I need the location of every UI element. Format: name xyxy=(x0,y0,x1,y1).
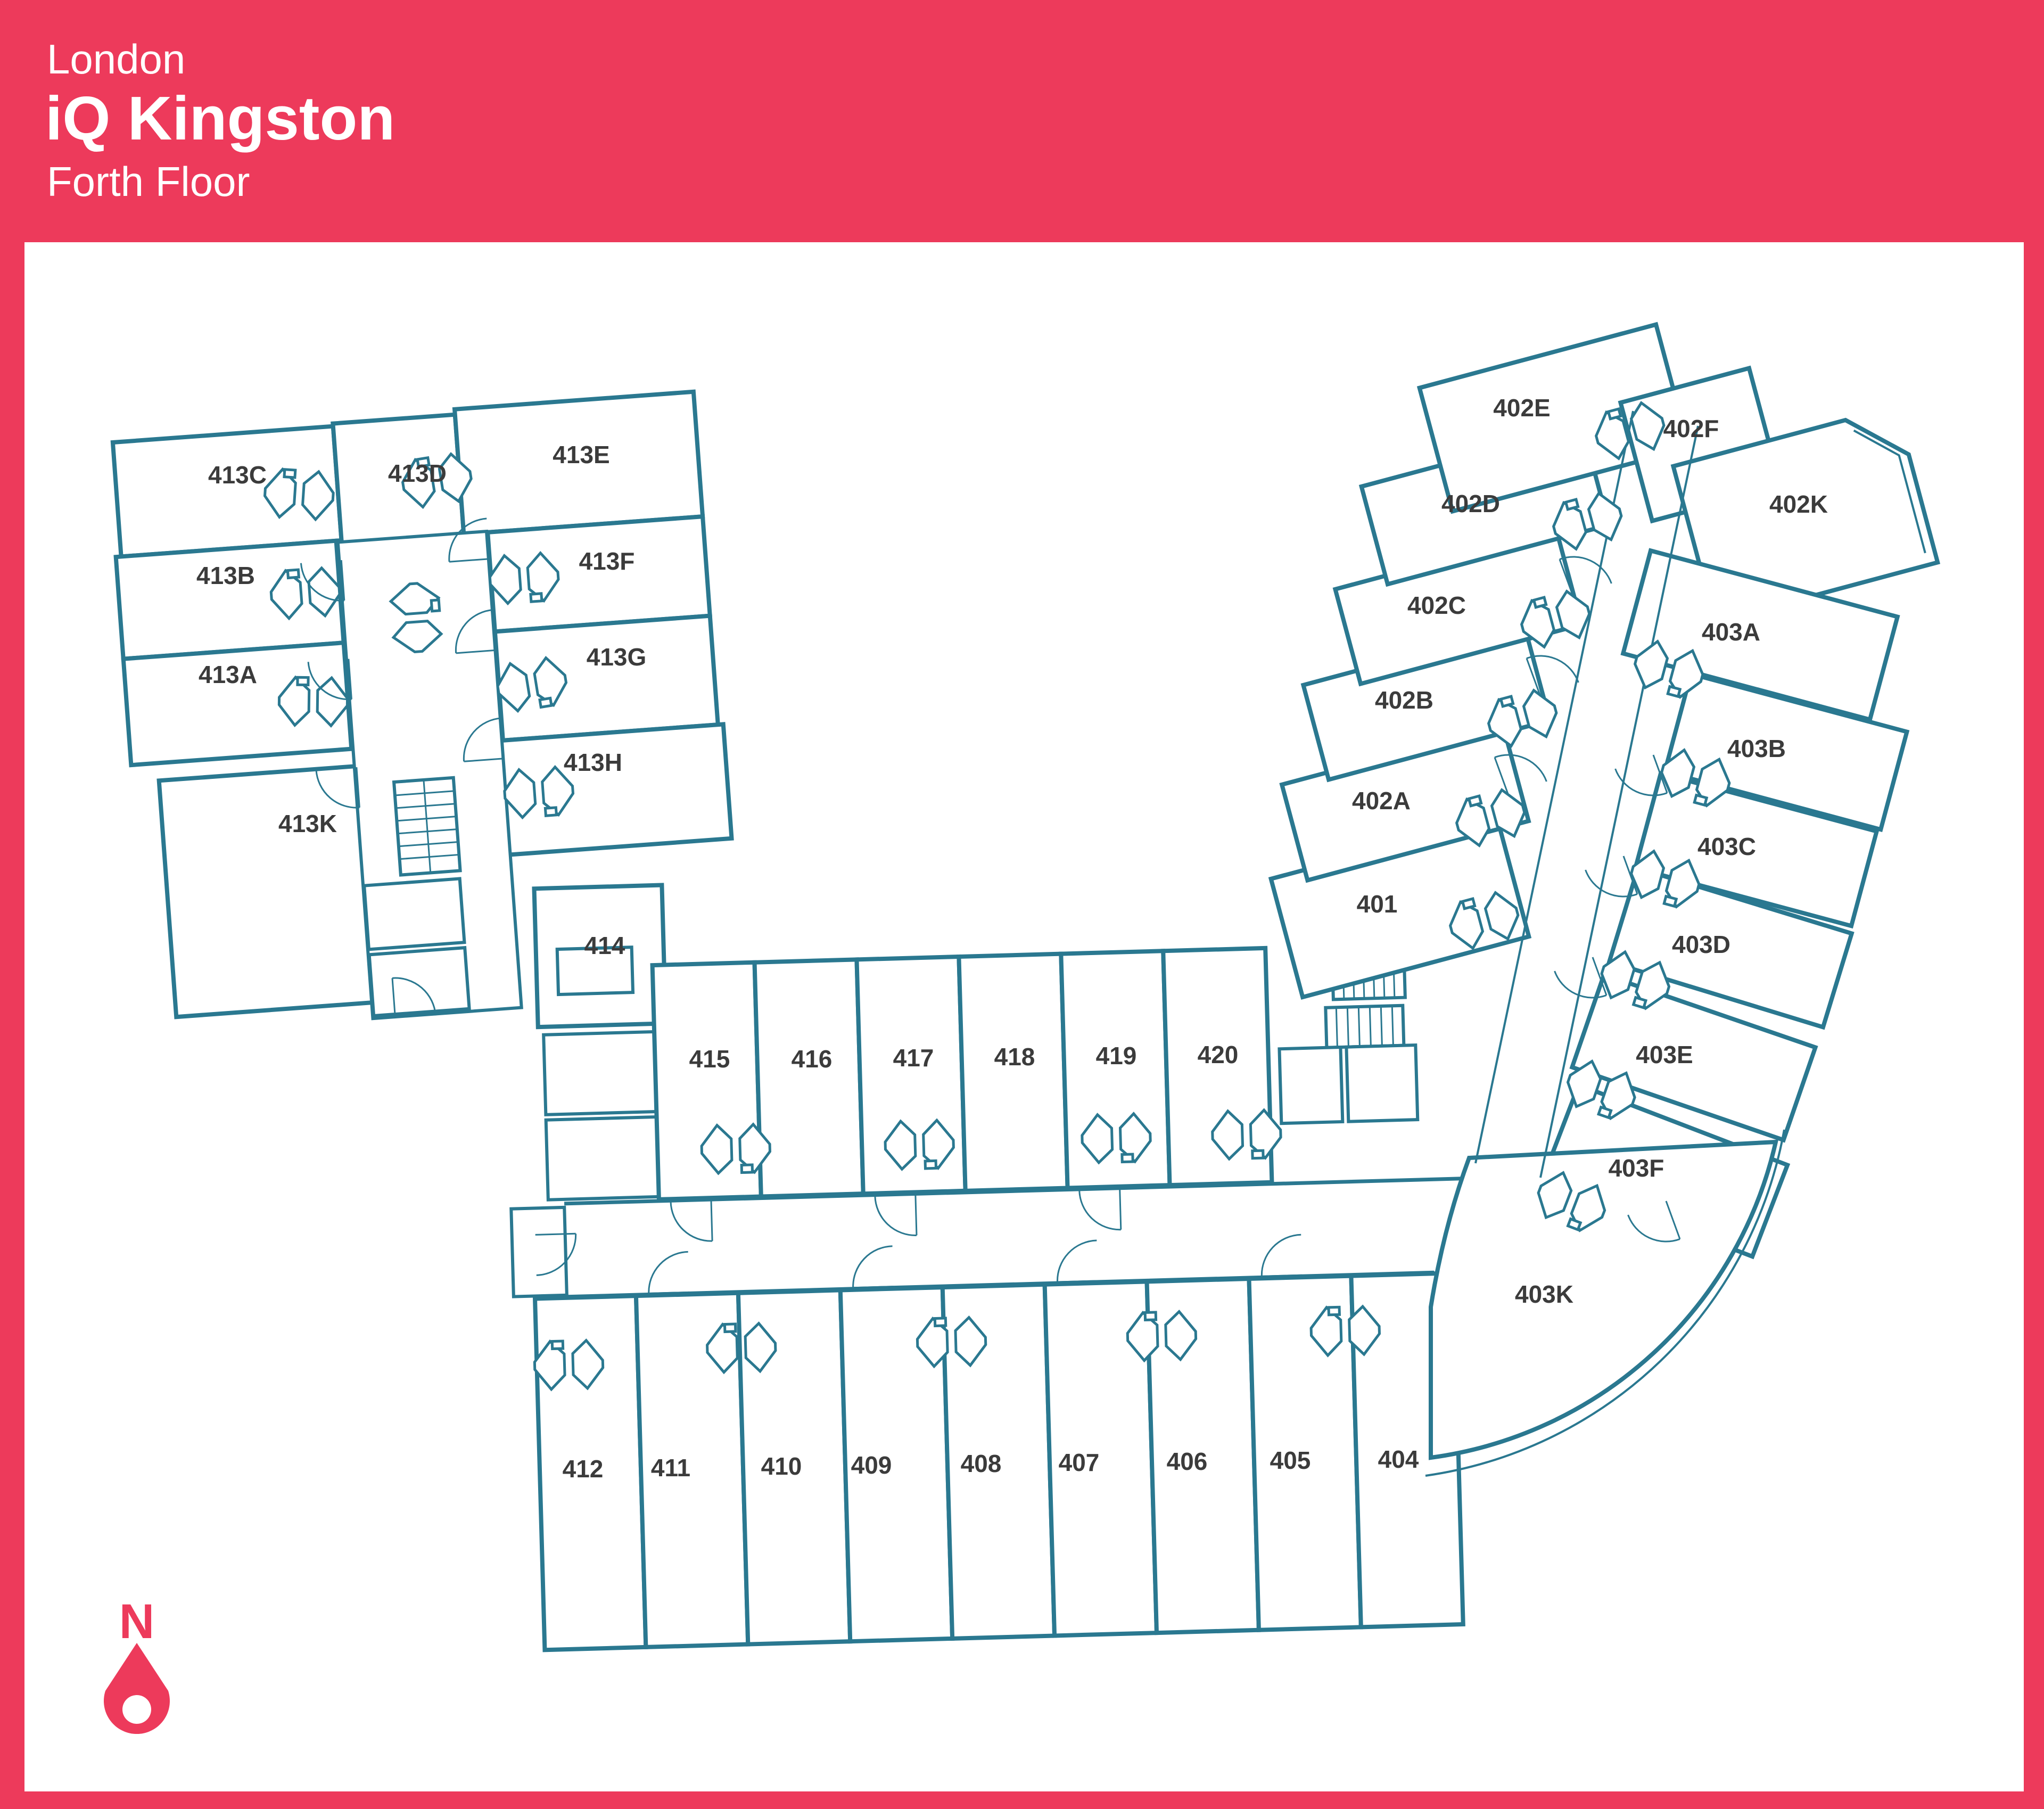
north-label: N xyxy=(119,1594,154,1649)
room-label-417: 417 xyxy=(893,1044,934,1072)
room-label-413B: 413B xyxy=(196,562,255,589)
room-label-403K: 403K xyxy=(1515,1280,1573,1308)
room-416 xyxy=(755,959,863,1196)
room-label-413A: 413A xyxy=(199,661,257,688)
room-label-402E: 402E xyxy=(1493,394,1550,422)
room-label-414: 414 xyxy=(584,932,625,959)
room-label-402D: 402D xyxy=(1441,490,1500,517)
room-label-413H: 413H xyxy=(564,749,622,776)
room-413K xyxy=(159,766,376,1017)
room-label-420: 420 xyxy=(1198,1041,1239,1068)
service-room xyxy=(1346,1045,1417,1122)
room-label-416: 416 xyxy=(792,1045,833,1073)
room-label-402K: 402K xyxy=(1769,490,1828,518)
room-label-413E: 413E xyxy=(553,441,609,468)
room-label-413K: 413K xyxy=(278,810,337,837)
room-label-403D: 403D xyxy=(1672,931,1730,958)
room-label-409: 409 xyxy=(851,1451,892,1479)
room-label-418: 418 xyxy=(994,1043,1035,1071)
service-room xyxy=(1279,1047,1342,1123)
room-label-403B: 403B xyxy=(1727,735,1786,762)
room-label-406: 406 xyxy=(1167,1448,1208,1475)
room-label-403C: 403C xyxy=(1697,833,1756,860)
room-label-413C: 413C xyxy=(208,461,267,489)
utility-room xyxy=(546,1117,660,1200)
service-room xyxy=(364,878,464,949)
room-413G xyxy=(495,616,718,741)
room-label-405: 405 xyxy=(1270,1446,1311,1474)
room-label-413D: 413D xyxy=(388,459,447,487)
header: London iQ Kingston Forth Floor xyxy=(45,36,395,205)
corridor-vestibule xyxy=(511,1207,567,1297)
room-label-403E: 403E xyxy=(1636,1041,1693,1068)
north-pin-hole xyxy=(122,1695,151,1724)
room-label-411: 411 xyxy=(651,1454,690,1482)
room-418 xyxy=(959,954,1067,1191)
room-label-403F: 403F xyxy=(1609,1154,1664,1182)
room-label-419: 419 xyxy=(1096,1042,1137,1070)
room-label-402F: 402F xyxy=(1663,415,1719,442)
room-label-408: 408 xyxy=(961,1450,1002,1477)
room-label-410: 410 xyxy=(761,1452,802,1480)
room-label-412: 412 xyxy=(563,1455,604,1483)
room-label-407: 407 xyxy=(1059,1449,1100,1476)
floor-plan-poster: 413C 413D 413E 413B 413F 413A 413G 413H … xyxy=(0,0,2044,1809)
header-title: iQ Kingston xyxy=(45,84,395,153)
room-label-403A: 403A xyxy=(1702,618,1760,646)
room-label-401: 401 xyxy=(1357,890,1398,918)
utility-room xyxy=(543,1032,657,1115)
room-label-402B: 402B xyxy=(1375,686,1433,714)
room-label-402C: 402C xyxy=(1407,591,1466,619)
room-label-404: 404 xyxy=(1378,1445,1419,1473)
room-label-415: 415 xyxy=(689,1045,730,1073)
room-label-413G: 413G xyxy=(587,643,647,671)
room-label-413F: 413F xyxy=(579,547,635,575)
header-subtitle: Forth Floor xyxy=(47,158,250,205)
room-label-402A: 402A xyxy=(1352,787,1411,815)
service-room xyxy=(369,948,469,1016)
header-city: London xyxy=(47,36,185,83)
